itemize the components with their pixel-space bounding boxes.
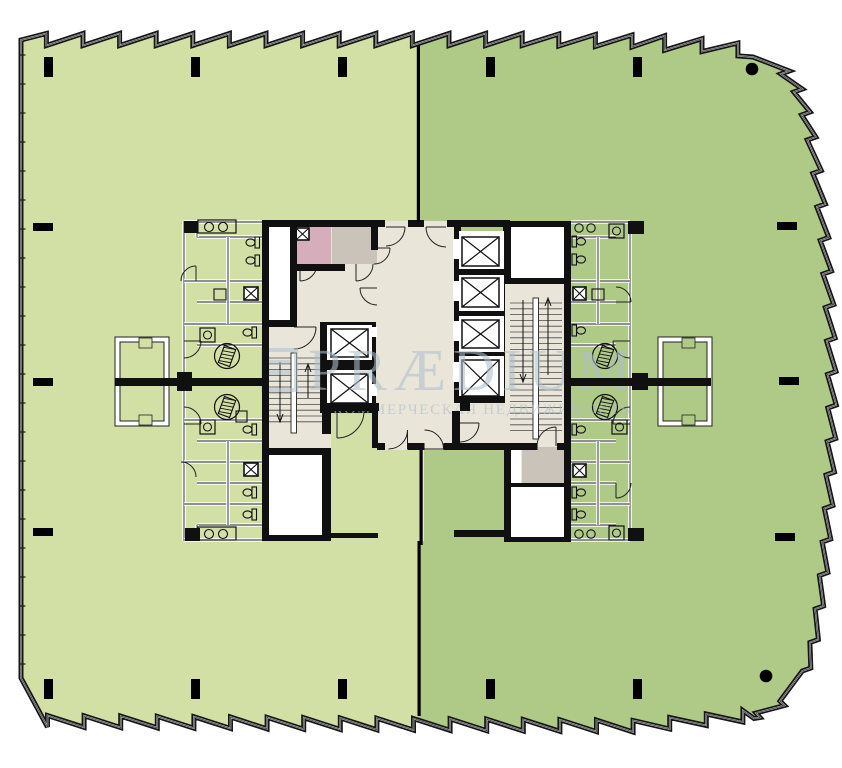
svg-text:PRÆDIUM: PRÆDIUM [308, 337, 637, 403]
